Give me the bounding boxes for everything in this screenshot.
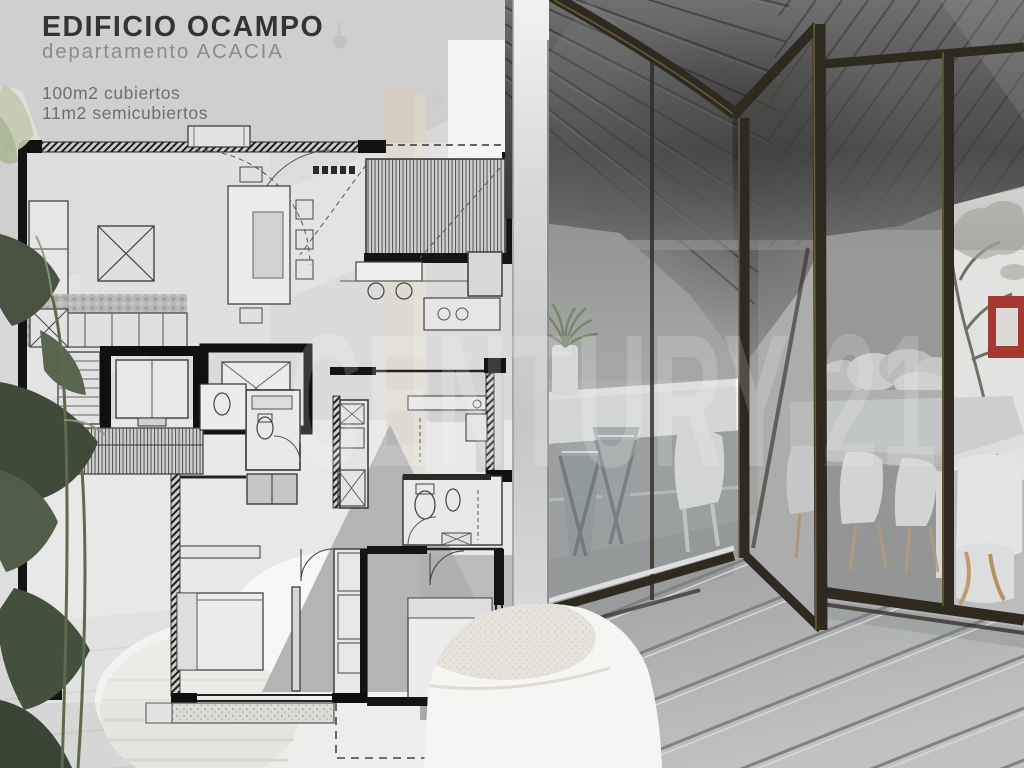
- svg-text:departamento ACACIA: departamento ACACIA: [42, 40, 284, 63]
- svg-text:11m2 semicubiertos: 11m2 semicubiertos: [42, 103, 208, 123]
- svg-text:CENTURY 21: CENTURY 21: [290, 296, 940, 507]
- svg-text:EDIFICIO OCAMPO: EDIFICIO OCAMPO: [42, 11, 324, 43]
- svg-text:100m2 cubiertos: 100m2 cubiertos: [42, 83, 180, 103]
